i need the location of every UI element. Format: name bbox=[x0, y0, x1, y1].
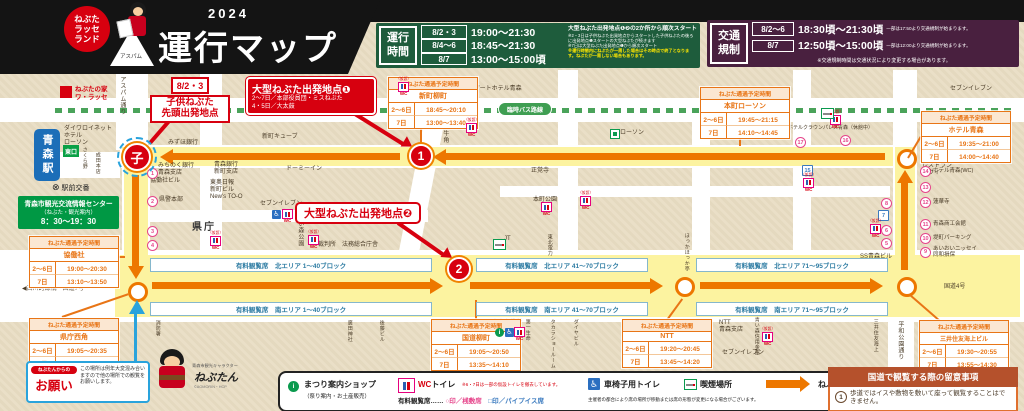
wc-female-glyph bbox=[407, 382, 410, 390]
pass-time-date: 2〜6日 bbox=[30, 262, 56, 275]
legend-shop-sub: （祭り案内・お土産販売） bbox=[304, 392, 370, 400]
pass-time-table-header: ねぶた通過予定時間 bbox=[623, 320, 711, 332]
convenience-store-icon bbox=[610, 129, 620, 139]
schedule-date-1: 8/2・3 bbox=[421, 25, 467, 39]
route-arrow-bottom-1 bbox=[152, 282, 430, 289]
parade-direction-arrow-icon bbox=[766, 380, 800, 388]
building-label: 協働社ビル bbox=[150, 178, 180, 185]
pass-time-date: 2〜6日 bbox=[623, 342, 649, 355]
notice-title: 国道で観覧する際の留意事項 bbox=[828, 367, 1018, 387]
aomori-station: 青森駅 bbox=[34, 129, 60, 181]
aspam-label: アスパム bbox=[120, 52, 142, 60]
wc-toilet-icon: （仮設）WC bbox=[306, 231, 321, 249]
pass-time-table-row: 7日13:35〜14:10 bbox=[432, 358, 520, 370]
nebutan-mascot: 青森市観光キャラクター ねぶたん ©AOMORIN・HCP bbox=[150, 347, 270, 407]
schedule-note-warning: ※運行時間内にねぶたが一周した場合はその時点で終了となります。ねぶたが一周しない… bbox=[568, 48, 697, 58]
route-arrow-bottom-3 bbox=[700, 282, 870, 289]
route-arrowhead-bottom-2 bbox=[650, 278, 663, 294]
wc-text: WC bbox=[400, 92, 408, 97]
zashiki-seat-number: 9 bbox=[920, 247, 931, 258]
wc-text: WC bbox=[310, 245, 318, 250]
route-arrow-left bbox=[132, 175, 139, 267]
callout-kodomo-start: 8/2・3 子供ねぶた 先頭出発地点 bbox=[150, 76, 230, 123]
seat-number-label: 蓮華寺 bbox=[933, 199, 950, 205]
zashiki-seat-number: 14 bbox=[920, 166, 931, 177]
wc-text: WC bbox=[212, 246, 220, 251]
kodomo-start-marker: 子 bbox=[123, 143, 151, 171]
wc-text: WC bbox=[543, 212, 551, 217]
pass-time-table-row: 2〜6日18:45〜20:10 bbox=[389, 103, 477, 116]
zashiki-seat-number: 2 bbox=[147, 196, 158, 207]
traffic-date-1: 8/2〜6 bbox=[752, 22, 794, 36]
wc-text: WC bbox=[832, 125, 840, 130]
paid-seat-area-label: 有料観覧席 南エリア 1〜40ブロック bbox=[150, 302, 432, 316]
start-point-1-marker: 1 bbox=[409, 144, 433, 168]
building-label: アートホテル青森 bbox=[474, 86, 522, 93]
zashiki-seat-number: 17 bbox=[795, 137, 806, 148]
building-label: 消防署 bbox=[154, 320, 160, 337]
seat-number-label: 青森商工会館 bbox=[933, 221, 966, 227]
pass-time-value: 19:20〜20:45 bbox=[649, 342, 711, 355]
pass-time-table-place: 協働社 bbox=[30, 249, 118, 262]
east-exit-label: 東口 bbox=[63, 145, 79, 157]
route-arrow-top-west bbox=[172, 153, 400, 160]
pass-time-table-row: 7日14:10〜14:45 bbox=[701, 126, 789, 138]
pass-time-table-row: 2〜6日19:45〜21:15 bbox=[701, 113, 789, 126]
info-center-sub: （ねぶた・観光案内） bbox=[19, 208, 118, 216]
koban-icon: ⊗ bbox=[52, 182, 60, 192]
pass-time-table: ねぶた通過予定時間NTT2〜6日19:20〜20:457日13:45〜14:20 bbox=[622, 319, 712, 368]
callout-start-1-line1: 2〜7日／本部役員団・ミスねぶた bbox=[252, 96, 370, 104]
seat-number-marker: 9あいおいニッセイ 同和損保 bbox=[920, 246, 977, 258]
start-point-2-marker: 2 bbox=[447, 257, 471, 281]
route-arrow-bottom-2 bbox=[470, 282, 650, 289]
zashiki-seat-number: 4 bbox=[147, 240, 158, 251]
building-label: 県警本部 bbox=[159, 197, 183, 204]
wc-toilet-icon: （仮設）WC bbox=[208, 232, 223, 250]
seat-number-marker: 3 bbox=[147, 226, 158, 237]
pass-time-date: 2〜6日 bbox=[922, 137, 948, 150]
pass-time-table-row: 7日14:00〜14:40 bbox=[922, 150, 1010, 162]
pass-time-value: 18:45〜20:10 bbox=[415, 103, 477, 116]
building-label: ほっかほっか亭 bbox=[683, 233, 689, 272]
legend-shop-label: まつり案内ショップ bbox=[304, 379, 376, 390]
callout-start-2-title: 大型ねぶた出発地点❷ bbox=[304, 208, 412, 220]
smoking-area-icon bbox=[684, 379, 697, 390]
wc-text: WC bbox=[805, 188, 813, 193]
wc-male-glyph bbox=[403, 382, 406, 390]
paid-seat-area-label: 有料観覧席 南エリア 71〜95ブロック bbox=[696, 302, 888, 316]
schedule-time-3: 13:00〜15:00頃 bbox=[471, 52, 546, 67]
junction-bottom-left bbox=[128, 282, 148, 302]
building-label: 東北電力 bbox=[546, 234, 552, 256]
schedule-note-main: 大型ねぶた出発地点❶❷の2か所から順次スタート bbox=[568, 26, 697, 33]
onegai-text: この場所は例年大変混み合いますので他の場所での観覧をお願いします。 bbox=[80, 366, 145, 398]
wc-toilet-icon: （仮設）WC bbox=[578, 192, 593, 210]
pass-time-table-header: ねぶた通過予定時間 bbox=[701, 88, 789, 100]
wc-toilet-icon: WC bbox=[282, 209, 293, 224]
route-arrowhead-left bbox=[128, 266, 144, 279]
seat-number-marker: 17 bbox=[795, 137, 806, 148]
building-label: 新町キューブ bbox=[262, 134, 298, 141]
pass-time-date: 2〜6日 bbox=[389, 103, 415, 116]
zashiki-seat-number: 13 bbox=[920, 182, 931, 193]
building-label: 平和公園通り bbox=[896, 321, 903, 360]
wc-text: WC bbox=[516, 337, 524, 342]
legend-wc-note: ※6・7日は一部の仮設トイレを撤去しています。 bbox=[462, 382, 560, 388]
legend-smoking-label: 喫煙場所 bbox=[700, 379, 732, 390]
wc-text: WC bbox=[284, 219, 292, 224]
seat-number-marker: 11青森商工会館 bbox=[920, 219, 966, 230]
building-label: 東奥日報 新町ビル New's TO-O bbox=[210, 180, 243, 201]
pass-time-value: 13:45〜14:20 bbox=[649, 355, 711, 367]
smoking-area-icon bbox=[493, 239, 506, 250]
wc-toilet-icon: （仮設）WC bbox=[464, 119, 479, 137]
zashiki-seat-number: 8 bbox=[881, 198, 892, 209]
seat-number-label: 堤町パーキング bbox=[933, 235, 971, 241]
building-label: アスパム通り bbox=[118, 76, 125, 115]
building-label: NTT 青森支店 bbox=[719, 320, 743, 334]
seat-number-marker: 2 bbox=[147, 196, 158, 207]
wc-text: WC bbox=[468, 133, 476, 138]
route-arrowhead-top-east bbox=[433, 149, 446, 165]
paid-seat-area-label: 有料観覧席 北エリア 1〜40ブロック bbox=[150, 258, 432, 272]
paid-seat-area-label: 有料観覧席 北エリア 71〜95ブロック bbox=[696, 258, 888, 272]
zashiki-seat-number: 3 bbox=[147, 226, 158, 237]
kodomo-route-line bbox=[134, 314, 137, 364]
kodomo-route-arrowhead bbox=[129, 300, 145, 314]
pass-time-date: 7日 bbox=[389, 116, 415, 128]
building-label: みちのく銀行 青森支店 bbox=[158, 163, 194, 177]
building-label: 国道4号 bbox=[944, 284, 965, 291]
junction-bottom-mid bbox=[675, 277, 695, 297]
pass-time-date: 7日 bbox=[432, 358, 458, 370]
pass-time-table-place: 三井住友海上ビル bbox=[920, 333, 1008, 345]
pass-time-date: 7日 bbox=[30, 275, 56, 287]
zashiki-seat-number: 11 bbox=[920, 219, 931, 230]
route-arrowhead-right bbox=[897, 170, 913, 183]
schedule-note-1: ※2・3日は子供ねぶた出発地点からスタートした子供ねぶたの後ろに出発地点❶スター… bbox=[568, 33, 697, 43]
route-arrow-right bbox=[901, 182, 908, 270]
pass-time-table-header: ねぶた通過予定時間 bbox=[30, 237, 118, 249]
zashiki-seat-mark: ○印／桟敷席 bbox=[445, 398, 481, 405]
traffic-regulation-box: 交通 規制 8/2〜618:30頃〜21:30頃一部は17:50より交通規制が始… bbox=[707, 20, 1019, 67]
route-arrowhead-bottom-1 bbox=[430, 278, 443, 294]
pass-time-date: 2〜6日 bbox=[701, 113, 727, 126]
building-label: ドーミーイン bbox=[286, 166, 322, 173]
pass-time-value: 19:05〜20:50 bbox=[458, 345, 520, 358]
building-label: 裁判所 法務総合庁舎 bbox=[318, 242, 378, 249]
nebutan-copyright: ©AOMORIN・HCP bbox=[194, 385, 227, 390]
seat-number-marker: 12蓮華寺 bbox=[920, 197, 950, 208]
building-label: さくら野 bbox=[81, 147, 87, 169]
pass-time-table-place: NTT bbox=[623, 332, 711, 342]
onegai-title: お願い bbox=[31, 375, 77, 394]
pass-time-table: ねぶた通過予定時間ホテル青森2〜6日19:35〜21:007日14:00〜14:… bbox=[921, 111, 1011, 163]
wc-toilet-icon: （仮設）WC bbox=[868, 220, 883, 238]
traffic-time-2: 12:50頃〜15:00頃 bbox=[798, 38, 883, 53]
pass-time-date: 7日 bbox=[922, 150, 948, 162]
pass-time-date: 7日 bbox=[623, 355, 649, 367]
info-icon: i bbox=[288, 381, 299, 392]
junction-top-right bbox=[897, 149, 917, 169]
seat-number-marker: 13 bbox=[920, 182, 931, 193]
operation-hours-box: 運行 時間 8/2・319:00〜21:30 8/4〜618:45〜21:30 … bbox=[376, 23, 700, 68]
pass-time-table-place: 本町ローソン bbox=[701, 100, 789, 113]
legend-wc-label: WCトイレ bbox=[418, 379, 455, 390]
tourist-info-center: 青森市観光交流情報センター （ねぶた・観光案内） 8：30〜19：30 bbox=[18, 196, 119, 229]
pass-time-table-header: ねぶた通過予定時間 bbox=[922, 112, 1010, 124]
traffic-note-2: 一部は12:00より交通規制が始まります。 bbox=[886, 43, 970, 49]
route-arrowhead-bottom-3 bbox=[870, 278, 883, 294]
operation-hours-label: 運行 時間 bbox=[379, 26, 417, 65]
building-label: ダイヤビル bbox=[572, 319, 578, 347]
title-year: 2024 bbox=[208, 6, 249, 21]
callout-start-1-title: 大型ねぶた出発地点❶ bbox=[252, 81, 370, 96]
nebutan-name: ねぶたん bbox=[194, 369, 238, 385]
pass-time-table: ねぶた通過予定時間協働社2〜6日19:00〜20:307日13:10〜13:50 bbox=[29, 236, 119, 288]
pass-time-table-row: 2〜6日19:35〜21:00 bbox=[922, 137, 1010, 150]
legend-small-note: 主催者の都合により席の場所が移動または席の形態が変更になる場合がございます。 bbox=[588, 397, 758, 403]
building-label: みずほ銀行 bbox=[168, 140, 198, 147]
legend-wheelchair-label: 車椅子用トイレ bbox=[604, 379, 660, 390]
wheelchair-icon: ♿ bbox=[272, 210, 281, 219]
traffic-note-1: 一部は17:50より交通規制が始まります。 bbox=[886, 26, 970, 32]
pass-time-table: ねぶた通過予定時間国道柳町2〜6日19:05〜20:507日13:35〜14:1… bbox=[431, 319, 521, 371]
pass-time-date: 2〜6日 bbox=[432, 345, 458, 358]
seat-number-marker: 5 bbox=[881, 238, 892, 249]
building-label: 青い森信用金庫 bbox=[753, 317, 759, 356]
schedule-date-2: 8/4〜6 bbox=[421, 39, 467, 53]
pass-time-table-row: 7日13:45〜14:20 bbox=[623, 355, 711, 367]
wheelchair-icon: ♿ bbox=[588, 378, 600, 390]
seat-number-marker: 8 bbox=[881, 198, 892, 209]
info-center-hours: 8：30〜19：30 bbox=[19, 216, 118, 227]
pass-time-date: 2〜6日 bbox=[920, 345, 946, 358]
pass-time-value: 14:00〜14:40 bbox=[948, 150, 1010, 162]
page-title: 運行マップ bbox=[158, 21, 338, 70]
wc-toilet-icon: WC bbox=[514, 327, 525, 342]
wc-toilet-icon bbox=[398, 378, 415, 393]
traffic-note-bottom: ※交通規制時間は交通状況により変更する場合があります。 bbox=[752, 57, 1016, 64]
traffic-date-2: 8/7 bbox=[752, 40, 794, 52]
building-label: セブンイレブン bbox=[950, 86, 992, 93]
pass-time-table-row: 2〜6日19:30〜20:55 bbox=[920, 345, 1008, 358]
warasse-label: ねぶたの家 ワ・ラッセ bbox=[75, 86, 108, 102]
route-arrow-top-east bbox=[445, 153, 885, 160]
pass-time-table: ねぶた通過予定時間三井住友海上ビル2〜6日19:30〜20:557日13:55〜… bbox=[919, 320, 1009, 371]
traffic-regulation-label: 交通 規制 bbox=[710, 23, 748, 64]
wc-text: WC bbox=[582, 206, 590, 211]
pass-time-table-header: ねぶた通過予定時間 bbox=[30, 319, 118, 331]
pass-time-table-row: 2〜6日19:05〜20:35 bbox=[30, 344, 118, 357]
pass-time-table-header: ねぶた通過予定時間 bbox=[920, 321, 1008, 333]
pass-time-table-row: 7日13:10〜13:50 bbox=[30, 275, 118, 287]
building-label: ローソン bbox=[620, 130, 644, 137]
building-label: 正覚寺 bbox=[531, 168, 549, 175]
pass-time-value: 19:05〜20:35 bbox=[56, 344, 118, 357]
pass-time-value: 19:45〜21:15 bbox=[727, 113, 789, 126]
wc-toilet-icon: （仮設）WC bbox=[396, 78, 411, 96]
seat-number-label: ホテル青森(WC) bbox=[933, 168, 973, 174]
callout-kodomo-date: 8/2・3 bbox=[171, 77, 210, 94]
info-center-name: 青森市観光交流情報センター bbox=[19, 198, 118, 208]
notice-item-number: 1 bbox=[835, 391, 847, 403]
callout-kodomo-text: 子供ねぶた 先頭出発地点 bbox=[150, 95, 230, 123]
pass-time-table: ねぶた通過予定時間本町ローソン2〜6日19:45〜21:157日14:10〜14… bbox=[700, 87, 790, 139]
pass-time-value: 13:35〜14:10 bbox=[458, 358, 520, 370]
zashiki-seat-number: 10 bbox=[920, 233, 931, 244]
building-label: 牛角 bbox=[441, 130, 448, 143]
traffic-time-1: 18:30頃〜21:30頃 bbox=[798, 22, 883, 37]
building-label: 青森銀行 新町支店 bbox=[214, 162, 238, 176]
wc-toilet-icon: （仮設）WC bbox=[801, 174, 816, 192]
wheelchair-icon: ♿ bbox=[505, 328, 514, 337]
pass-time-value: 14:10〜14:45 bbox=[727, 126, 789, 138]
pass-time-value: 19:00〜20:30 bbox=[56, 262, 118, 275]
schedule-date-3: 8/7 bbox=[421, 53, 467, 65]
cigarette-glyph bbox=[686, 384, 695, 386]
zashiki-seat-number: 5 bbox=[881, 238, 892, 249]
pass-time-table-place: ホテル青森 bbox=[922, 124, 1010, 137]
header-character: アスパム bbox=[104, 2, 164, 70]
callout-start-1-line2: 4・5日／大太鼓 bbox=[252, 104, 370, 112]
pass-time-value: 19:30〜20:55 bbox=[946, 345, 1008, 358]
pipe-chair-seat-mark: □印／パイプイス席 bbox=[488, 398, 544, 405]
street-mid-right bbox=[500, 186, 890, 197]
pass-time-date: 7日 bbox=[701, 126, 727, 138]
building-label: 廣田神社 bbox=[346, 320, 352, 342]
pass-time-date: 2〜6日 bbox=[30, 344, 56, 357]
character-face bbox=[133, 7, 143, 16]
pass-time-table-place: 県庁西角 bbox=[30, 331, 118, 344]
building-label: タカラショールーム bbox=[549, 319, 555, 369]
warasse-red-square-icon bbox=[60, 86, 72, 98]
zashiki-seat-number: 16 bbox=[840, 135, 851, 146]
wc-toilet-icon: WC bbox=[541, 202, 552, 217]
highway-viewing-notice: 国道で観覧する際の留意事項 1 歩道ではイスや敷物を敷いて座って観覧することはで… bbox=[828, 367, 1018, 411]
paid-seat-area-label: 有料観覧席 北エリア 41〜70ブロック bbox=[476, 258, 648, 272]
zashiki-seat-number: 12 bbox=[920, 197, 931, 208]
building-label: 成田本店 bbox=[94, 152, 100, 174]
pass-time-table-row: 2〜6日19:00〜20:30 bbox=[30, 262, 118, 275]
building-label: 後藤ビル bbox=[378, 320, 384, 342]
pass-time-value: 19:35〜21:00 bbox=[948, 137, 1010, 150]
callout-start-1: 大型ねぶた出発地点❶ 2〜7日／本部役員団・ミスねぶた 4・5日／大太鼓 bbox=[246, 77, 376, 115]
smoking-area-icon bbox=[821, 108, 834, 119]
seat-number-marker: 14ホテル青森(WC) bbox=[920, 166, 973, 177]
nebutan-belt bbox=[159, 375, 185, 380]
building-label: ダイワロイネット ホテル ローソン bbox=[64, 126, 112, 147]
paid-seat-area-label: 有料観覧席 南エリア 41〜70ブロック bbox=[476, 302, 648, 316]
temporary-bus-route-label: 臨時バス路線 bbox=[498, 102, 552, 116]
wc-text: WC bbox=[764, 342, 772, 347]
callout-start-2: 大型ねぶた出発地点❷ bbox=[295, 202, 421, 224]
seat-number-marker: 16 bbox=[840, 135, 851, 146]
police-box-label: ⊗ 駅前交番 bbox=[52, 182, 90, 193]
warasse-legend: ねぶたの家 ワ・ラッセ bbox=[60, 86, 108, 102]
pass-time-table-row: 2〜6日19:20〜20:45 bbox=[623, 342, 711, 355]
onegai-badge: ねぶたんからの bbox=[31, 366, 77, 374]
building-label: 三井住友海上 bbox=[872, 319, 878, 352]
legend-seats-row: 有料観覧席…… ○印／桟敷席 □印／パイプイス席 bbox=[398, 395, 544, 405]
seat-number-marker: 10堤町パーキング bbox=[920, 233, 971, 244]
pass-time-table-row: 2〜6日19:05〜20:50 bbox=[432, 345, 520, 358]
seat-number-marker: 4 bbox=[147, 240, 158, 251]
info-icon: i bbox=[495, 328, 504, 337]
pass-time-value: 13:10〜13:50 bbox=[56, 275, 118, 287]
wc-toilet-icon: （仮設）WC bbox=[760, 328, 775, 346]
junction-bottom-right bbox=[897, 277, 917, 297]
seat-number-label: あいおいニッセイ 同和損保 bbox=[933, 246, 977, 258]
onegai-notice: ねぶたんからの お願い この場所は例年大変混み合いますので他の場所での観覧をお願… bbox=[26, 361, 150, 403]
nebuta-parade-map: 臨時バス路線 子 1 2 8/2・3 子供ねぶた 先頭出発地点 大型ねぶた出発地… bbox=[0, 0, 1024, 411]
notice-item-text: 歩道ではイスや敷物を敷いて座って観覧することはできません。 bbox=[850, 390, 1011, 407]
wc-text: WC bbox=[872, 234, 880, 239]
